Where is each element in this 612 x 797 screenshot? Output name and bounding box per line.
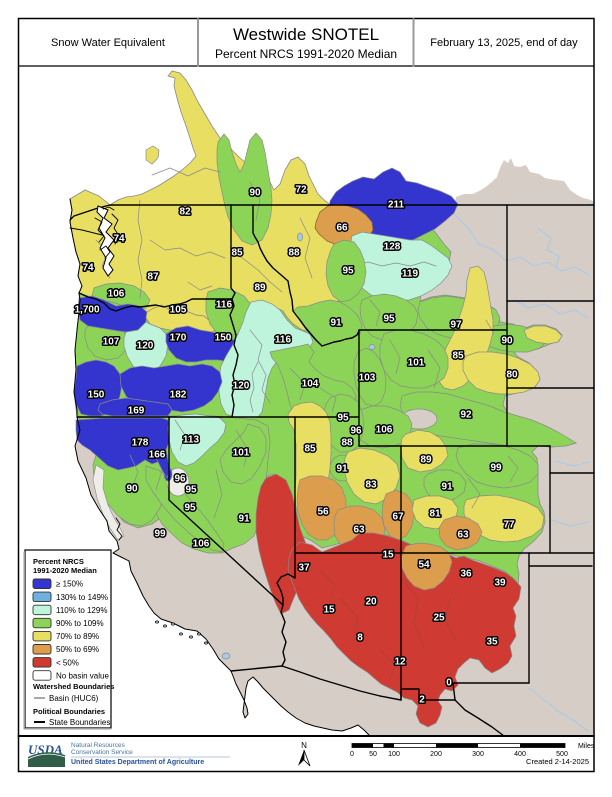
svg-text:Percent NRCS 1991-2020 Median: Percent NRCS 1991-2020 Median [215,47,397,61]
svg-text:Westwide SNOTEL: Westwide SNOTEL [233,25,379,44]
svg-text:12: 12 [394,657,406,668]
svg-text:67: 67 [392,512,404,523]
svg-text:99: 99 [490,463,502,474]
svg-text:101: 101 [408,358,425,369]
svg-text:91: 91 [336,464,348,475]
svg-text:150: 150 [88,390,105,401]
svg-text:63: 63 [353,525,365,536]
svg-text:400: 400 [514,751,526,758]
svg-text:≥ 150%: ≥ 150% [56,580,83,589]
svg-text:97: 97 [450,320,462,331]
svg-text:70% to 89%: 70% to 89% [56,632,99,641]
svg-text:96: 96 [174,474,186,485]
svg-text:1,700: 1,700 [74,305,99,316]
svg-text:Created 2-14-2025: Created 2-14-2025 [526,757,589,766]
svg-text:200: 200 [430,751,442,758]
svg-text:91: 91 [238,514,250,525]
svg-text:166: 166 [149,450,166,461]
svg-text:87: 87 [147,272,159,283]
svg-text:116: 116 [216,300,233,311]
svg-text:Political Boundaries: Political Boundaries [33,707,105,716]
svg-text:37: 37 [298,563,310,574]
svg-text:63: 63 [457,530,469,541]
svg-text:88: 88 [288,248,300,259]
svg-text:State Boundaries: State Boundaries [49,718,110,727]
svg-text:36: 36 [460,569,472,580]
svg-text:120: 120 [233,381,250,392]
svg-text:1991-2020 Median: 1991-2020 Median [33,566,97,575]
svg-text:8: 8 [357,633,363,644]
svg-text:50: 50 [369,751,377,758]
svg-text:90% to 109%: 90% to 109% [56,619,104,628]
svg-text:Basin (HUC6): Basin (HUC6) [49,694,99,703]
svg-text:106: 106 [193,539,210,550]
svg-text:81: 81 [429,509,441,520]
svg-text:77: 77 [503,520,515,531]
svg-text:89: 89 [420,455,432,466]
svg-text:91: 91 [441,482,453,493]
svg-text:99: 99 [154,529,166,540]
svg-text:95: 95 [342,266,354,277]
svg-text:85: 85 [452,351,464,362]
svg-text:120: 120 [137,341,154,352]
svg-text:80: 80 [506,370,518,381]
svg-text:54: 54 [418,560,430,571]
svg-text:15: 15 [382,550,394,561]
svg-text:116: 116 [275,335,292,346]
svg-text:50% to 69%: 50% to 69% [56,645,99,654]
svg-text:95: 95 [185,485,197,496]
svg-text:Natural Resources: Natural Resources [71,742,126,749]
svg-text:82: 82 [179,207,191,218]
svg-text:91: 91 [330,318,342,329]
svg-text:56: 56 [317,507,329,518]
svg-text:211: 211 [388,200,405,211]
svg-text:United States Department of Ag: United States Department of Agriculture [71,759,204,766]
svg-text:85: 85 [304,444,316,455]
svg-text:103: 103 [359,373,376,384]
svg-text:106: 106 [108,289,125,300]
svg-text:85: 85 [231,248,243,259]
svg-text:130% to 149%: 130% to 149% [56,593,108,602]
svg-text:110% to 129%: 110% to 129% [56,606,107,615]
svg-text:74: 74 [113,234,125,245]
svg-text:25: 25 [433,613,445,624]
svg-text:83: 83 [365,480,377,491]
svg-text:178: 178 [132,438,149,449]
svg-text:Percent NRCS: Percent NRCS [33,557,84,566]
svg-text:February 13, 2025, end of day: February 13, 2025, end of day [430,37,578,49]
svg-text:Conservation Service: Conservation Service [71,749,133,756]
svg-text:88: 88 [341,438,353,449]
svg-text:90: 90 [126,484,138,495]
svg-text:95: 95 [337,413,349,424]
svg-text:106: 106 [376,425,393,436]
svg-text:95: 95 [383,314,395,325]
svg-text:66: 66 [336,223,348,234]
svg-text:150: 150 [215,333,232,344]
svg-text:300: 300 [472,751,484,758]
svg-text:90: 90 [501,336,513,347]
svg-text:No basin value: No basin value [56,671,109,680]
svg-text:119: 119 [402,269,419,280]
svg-text:113: 113 [183,435,200,446]
svg-text:0: 0 [350,751,354,758]
svg-text:20: 20 [365,597,377,608]
svg-text:101: 101 [233,448,250,459]
svg-text:95: 95 [184,503,196,514]
svg-text:104: 104 [302,379,319,390]
svg-text:35: 35 [486,637,498,648]
svg-text:170: 170 [170,333,187,344]
svg-text:96: 96 [350,426,362,437]
svg-text:169: 169 [128,406,145,417]
svg-text:2: 2 [419,695,425,706]
svg-text:89: 89 [254,283,266,294]
svg-text:182: 182 [170,390,187,401]
svg-text:90: 90 [249,188,261,199]
svg-text:Watershed Boundaries: Watershed Boundaries [33,682,114,691]
svg-text:0: 0 [446,678,452,689]
svg-text:105: 105 [170,305,187,316]
svg-text:< 50%: < 50% [56,658,79,667]
svg-text:100: 100 [388,751,400,758]
svg-text:N: N [301,741,307,750]
svg-text:Snow Water Equivalent: Snow Water Equivalent [51,37,165,49]
svg-text:Miles: Miles [578,743,595,750]
svg-text:107: 107 [103,337,120,348]
svg-text:15: 15 [323,605,335,616]
svg-text:92: 92 [460,410,472,421]
svg-text:128: 128 [384,242,401,253]
svg-text:39: 39 [494,578,506,589]
svg-text:72: 72 [295,185,307,196]
svg-text:74: 74 [82,263,94,274]
